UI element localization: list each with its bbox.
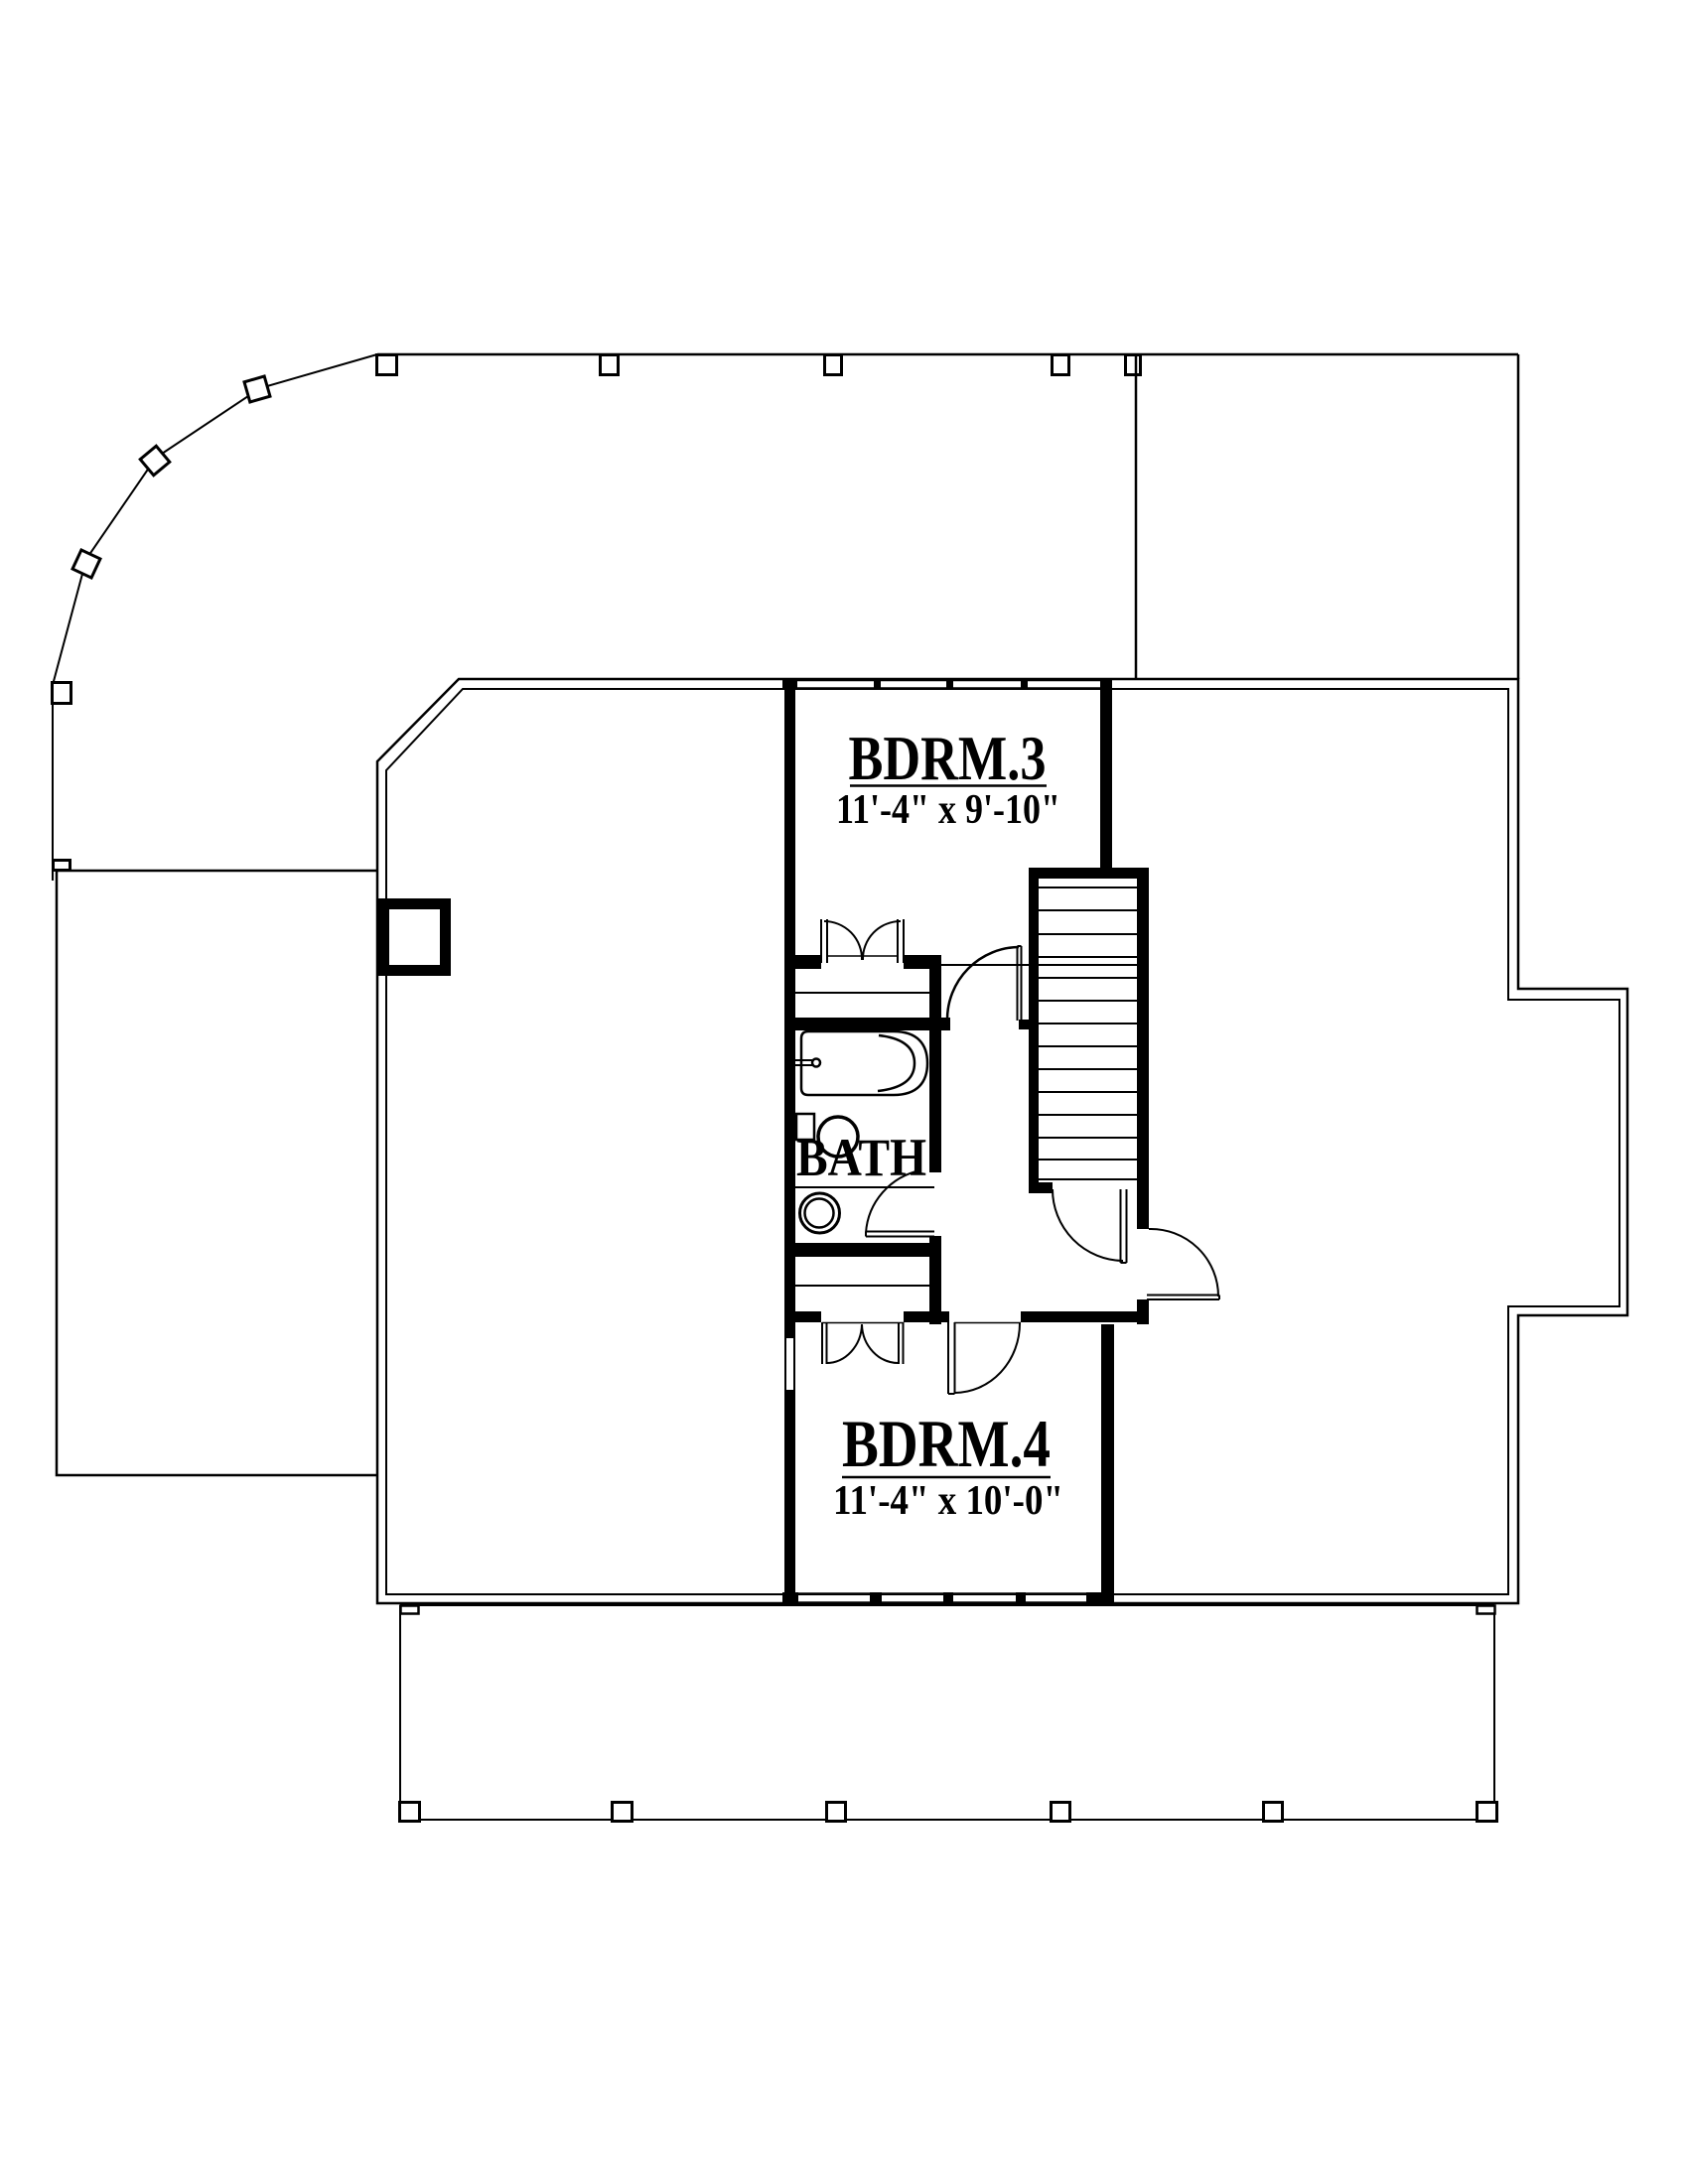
svg-text:BDRM.4: BDRM.4 <box>842 1406 1051 1481</box>
svg-text:BDRM.3: BDRM.3 <box>849 724 1047 793</box>
svg-text:BATH: BATH <box>796 1128 926 1187</box>
svg-text:11'-4" x 10'-0": 11'-4" x 10'-0" <box>833 1478 1063 1524</box>
svg-text:11'-4" x 9'-10": 11'-4" x 9'-10" <box>836 787 1060 833</box>
